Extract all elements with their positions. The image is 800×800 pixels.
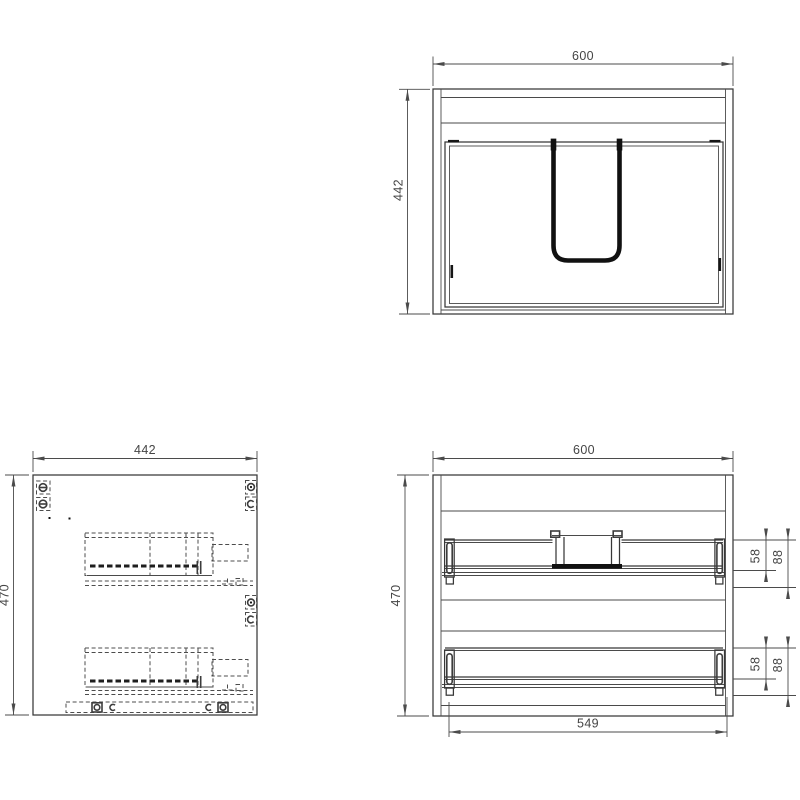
rear-view-upper-slide-height-label: 88	[771, 550, 785, 565]
top-view-depth-label: 442	[392, 179, 406, 201]
technical-drawing-page: 600 442	[0, 0, 800, 800]
side-view: 442 470	[0, 443, 257, 715]
rear-view-lower-drawer-back	[442, 648, 725, 695]
cabinet-technical-drawing: 600 442	[0, 0, 800, 800]
rear-view-upper-left-slide-clip	[445, 539, 455, 584]
rear-view-upper-right-slide-clip	[715, 539, 725, 584]
rear-view-width-label: 600	[573, 443, 595, 457]
side-view-fittings-middle-right	[246, 596, 257, 627]
rear-view-lower-right-slide-clip	[715, 650, 725, 695]
rear-view-lower-drawer-height-dimensions: 58 88	[733, 637, 796, 707]
rear-view-height-dimension: 470	[389, 475, 429, 716]
side-view-bottom-mounting-rail-hidden	[66, 702, 253, 713]
rear-view-drawer-span-label: 549	[577, 717, 599, 731]
top-view-depth-dimension: 442	[392, 89, 431, 314]
side-view-lower-drawer-slide-hidden	[85, 648, 253, 695]
rear-view-lower-left-slide-clip	[445, 650, 455, 695]
top-view-width-dimension: 600	[433, 49, 733, 86]
rear-view: 600 470 549 58 88	[389, 443, 796, 737]
side-view-depth-label: 442	[134, 443, 156, 457]
side-view-upper-drawer-slide-hidden	[85, 533, 253, 586]
side-view-height-dimension: 470	[0, 475, 29, 715]
rear-view-width-dimension: 600	[433, 443, 733, 472]
rear-view-lower-back-height-label: 58	[749, 657, 763, 672]
side-view-corner-fittings-top-right	[246, 481, 257, 511]
top-view-cabinet-outline	[433, 89, 733, 314]
side-view-cabinet-outline	[33, 475, 257, 715]
rear-view-upper-drawer-back	[442, 531, 725, 584]
top-view: 600 442	[392, 49, 734, 314]
top-view-width-label: 600	[572, 49, 594, 63]
top-view-drawer-box	[445, 141, 723, 307]
u-shaped-plumbing-cutout	[554, 139, 620, 261]
rear-view-upper-cutout-notch	[551, 531, 622, 569]
side-view-height-label: 470	[0, 584, 12, 606]
rear-view-drawer-span-dimension: 549	[449, 697, 727, 737]
side-view-corner-fittings-top-left	[37, 481, 71, 520]
rear-view-height-label: 470	[389, 584, 403, 606]
rear-view-upper-drawer-height-dimensions: 58 88	[733, 529, 796, 599]
rear-view-lower-slide-height-label: 88	[771, 658, 785, 673]
rear-view-upper-back-height-label: 58	[749, 549, 763, 564]
side-view-depth-dimension: 442	[33, 443, 257, 472]
